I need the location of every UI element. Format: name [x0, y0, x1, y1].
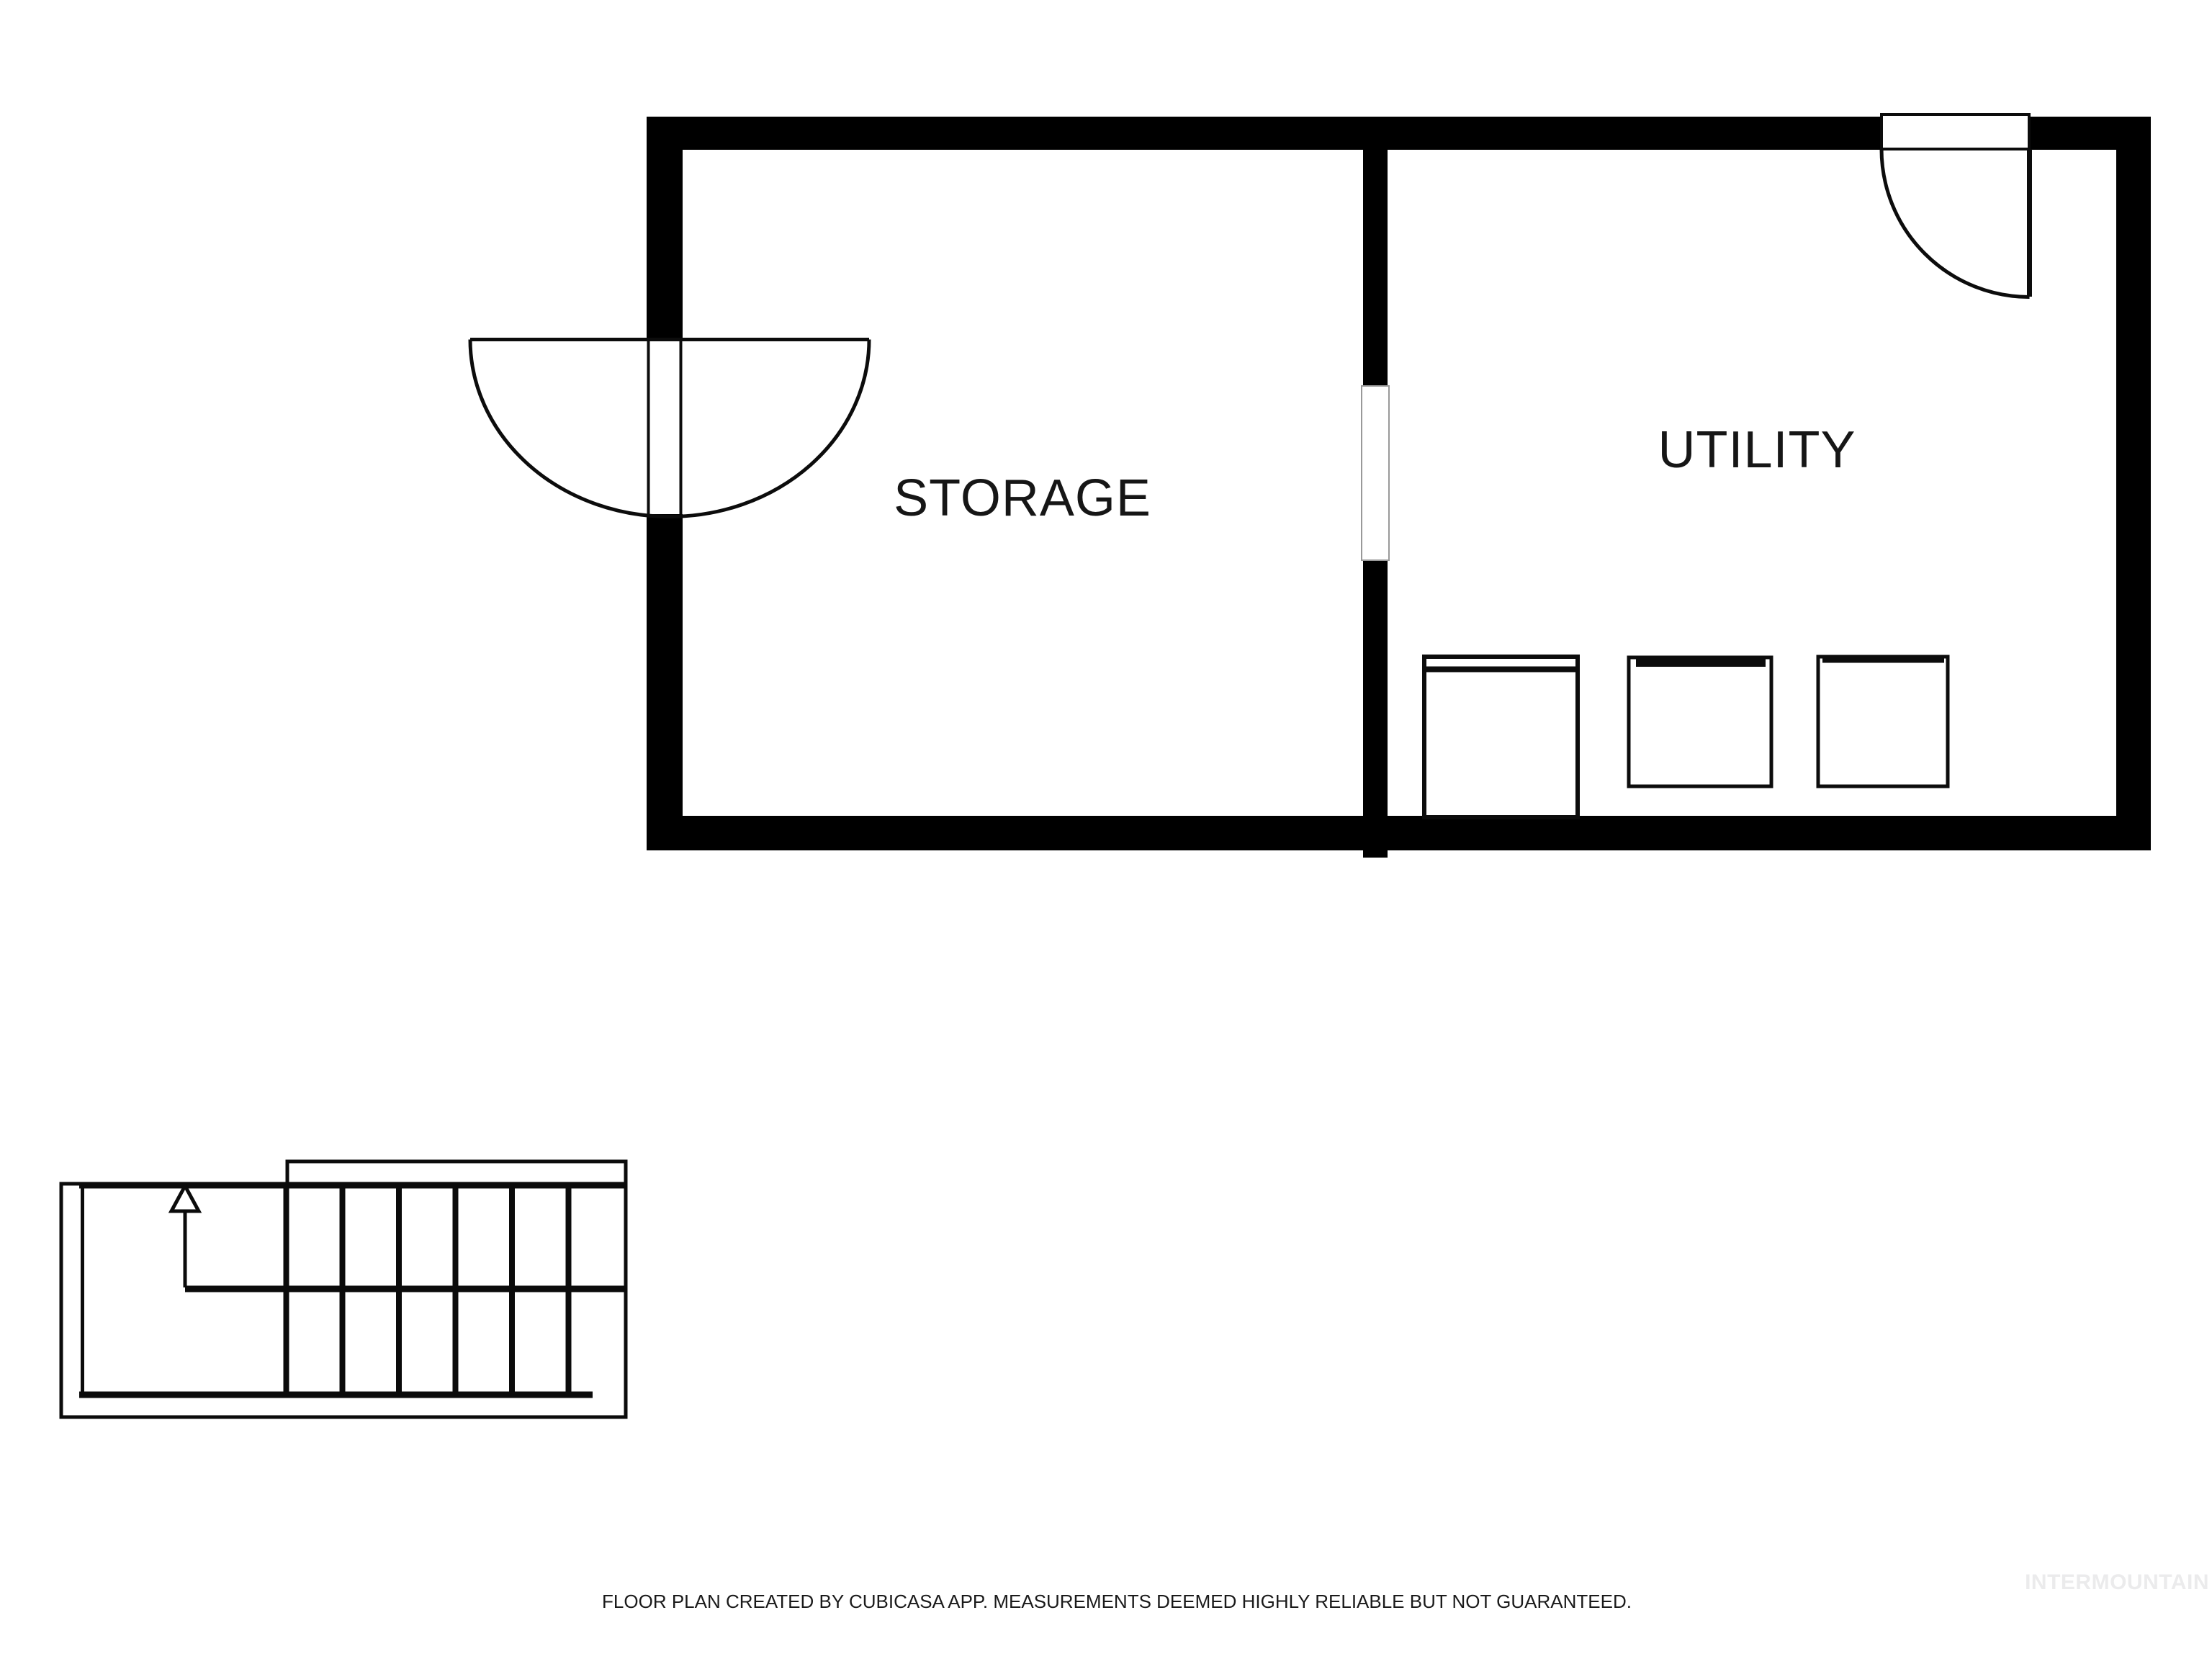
- wall-right: [2116, 117, 2151, 850]
- dryer-box-icon: [1629, 657, 1771, 786]
- intermountain-watermark: INTERMOUNTAIN: [2025, 1571, 2209, 1594]
- stairs-top-strip: [287, 1161, 626, 1184]
- wall-interior-lower-segment: [1363, 560, 1388, 817]
- wall-top-left-segment: [647, 117, 1881, 150]
- utility-door-swing-arc: [1881, 149, 2030, 297]
- utility-door-opening: [1881, 114, 2029, 149]
- utility-room-label: UTILITY: [1658, 424, 1856, 476]
- washer-box-icon: [1424, 657, 1578, 817]
- interior-doorway-opening: [1362, 386, 1389, 560]
- wall-left-upper-segment: [647, 117, 683, 338]
- utility-door: [1881, 114, 2030, 297]
- floor-plan-drawing: [0, 0, 2212, 1659]
- storage-door-opening: [647, 338, 683, 514]
- wall-bottom: [647, 816, 2151, 850]
- wall-interior-upper-segment: [1363, 150, 1388, 386]
- appliances: [1424, 657, 1948, 817]
- utility-box-icon: [1818, 657, 1948, 786]
- storage-door: [470, 338, 869, 516]
- wall-left-lower-segment: [647, 514, 683, 850]
- floor-plan-page: STORAGE UTILITY FLOOR PLAN CREATED BY CU…: [0, 0, 2212, 1659]
- wall-interior-stub: [1363, 850, 1388, 858]
- footer-disclaimer-text: FLOOR PLAN CREATED BY CUBICASA APP. MEAS…: [602, 1590, 1632, 1613]
- staircase: [61, 1161, 626, 1417]
- stairs-up-arrow-icon: [171, 1186, 199, 1287]
- storage-room-label: STORAGE: [894, 472, 1151, 524]
